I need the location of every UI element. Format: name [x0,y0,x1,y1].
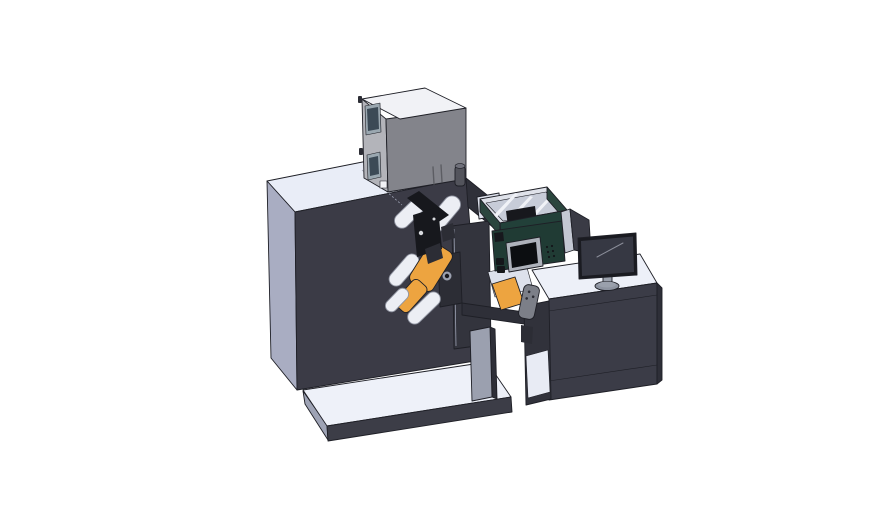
electronics-box [358,88,466,192]
box-window-lower-glass [369,156,379,176]
monitor-screen [581,237,634,277]
desk-front-face [549,283,657,400]
cabinet-left-face [267,181,297,390]
cad-viewport [0,0,888,522]
machine-render [0,0,888,522]
box-front-face [386,108,466,192]
box-vent-1 [433,167,434,184]
tower-plate-hole-center [445,274,449,278]
box-vent-2 [441,165,442,182]
monitor-stand-base-top [598,282,616,288]
box-window-upper-glass [367,107,379,131]
printhead-knob [419,231,423,235]
hmi-key-2 [497,266,505,273]
box-hinge-upper [358,96,362,103]
hmi-corner-block [494,232,504,242]
hmi-key-1 [496,258,504,265]
desk-right-face [657,283,662,384]
pendant-mount [521,325,533,344]
beacon-cap [455,164,465,169]
box-hinge-lower [359,148,363,155]
box-access-square [380,181,387,188]
beacon-body [455,166,465,186]
printhead-pin [433,218,436,221]
tower-leg-front [470,327,492,401]
signal-beacon [455,164,465,186]
desk-shelf [526,350,550,398]
